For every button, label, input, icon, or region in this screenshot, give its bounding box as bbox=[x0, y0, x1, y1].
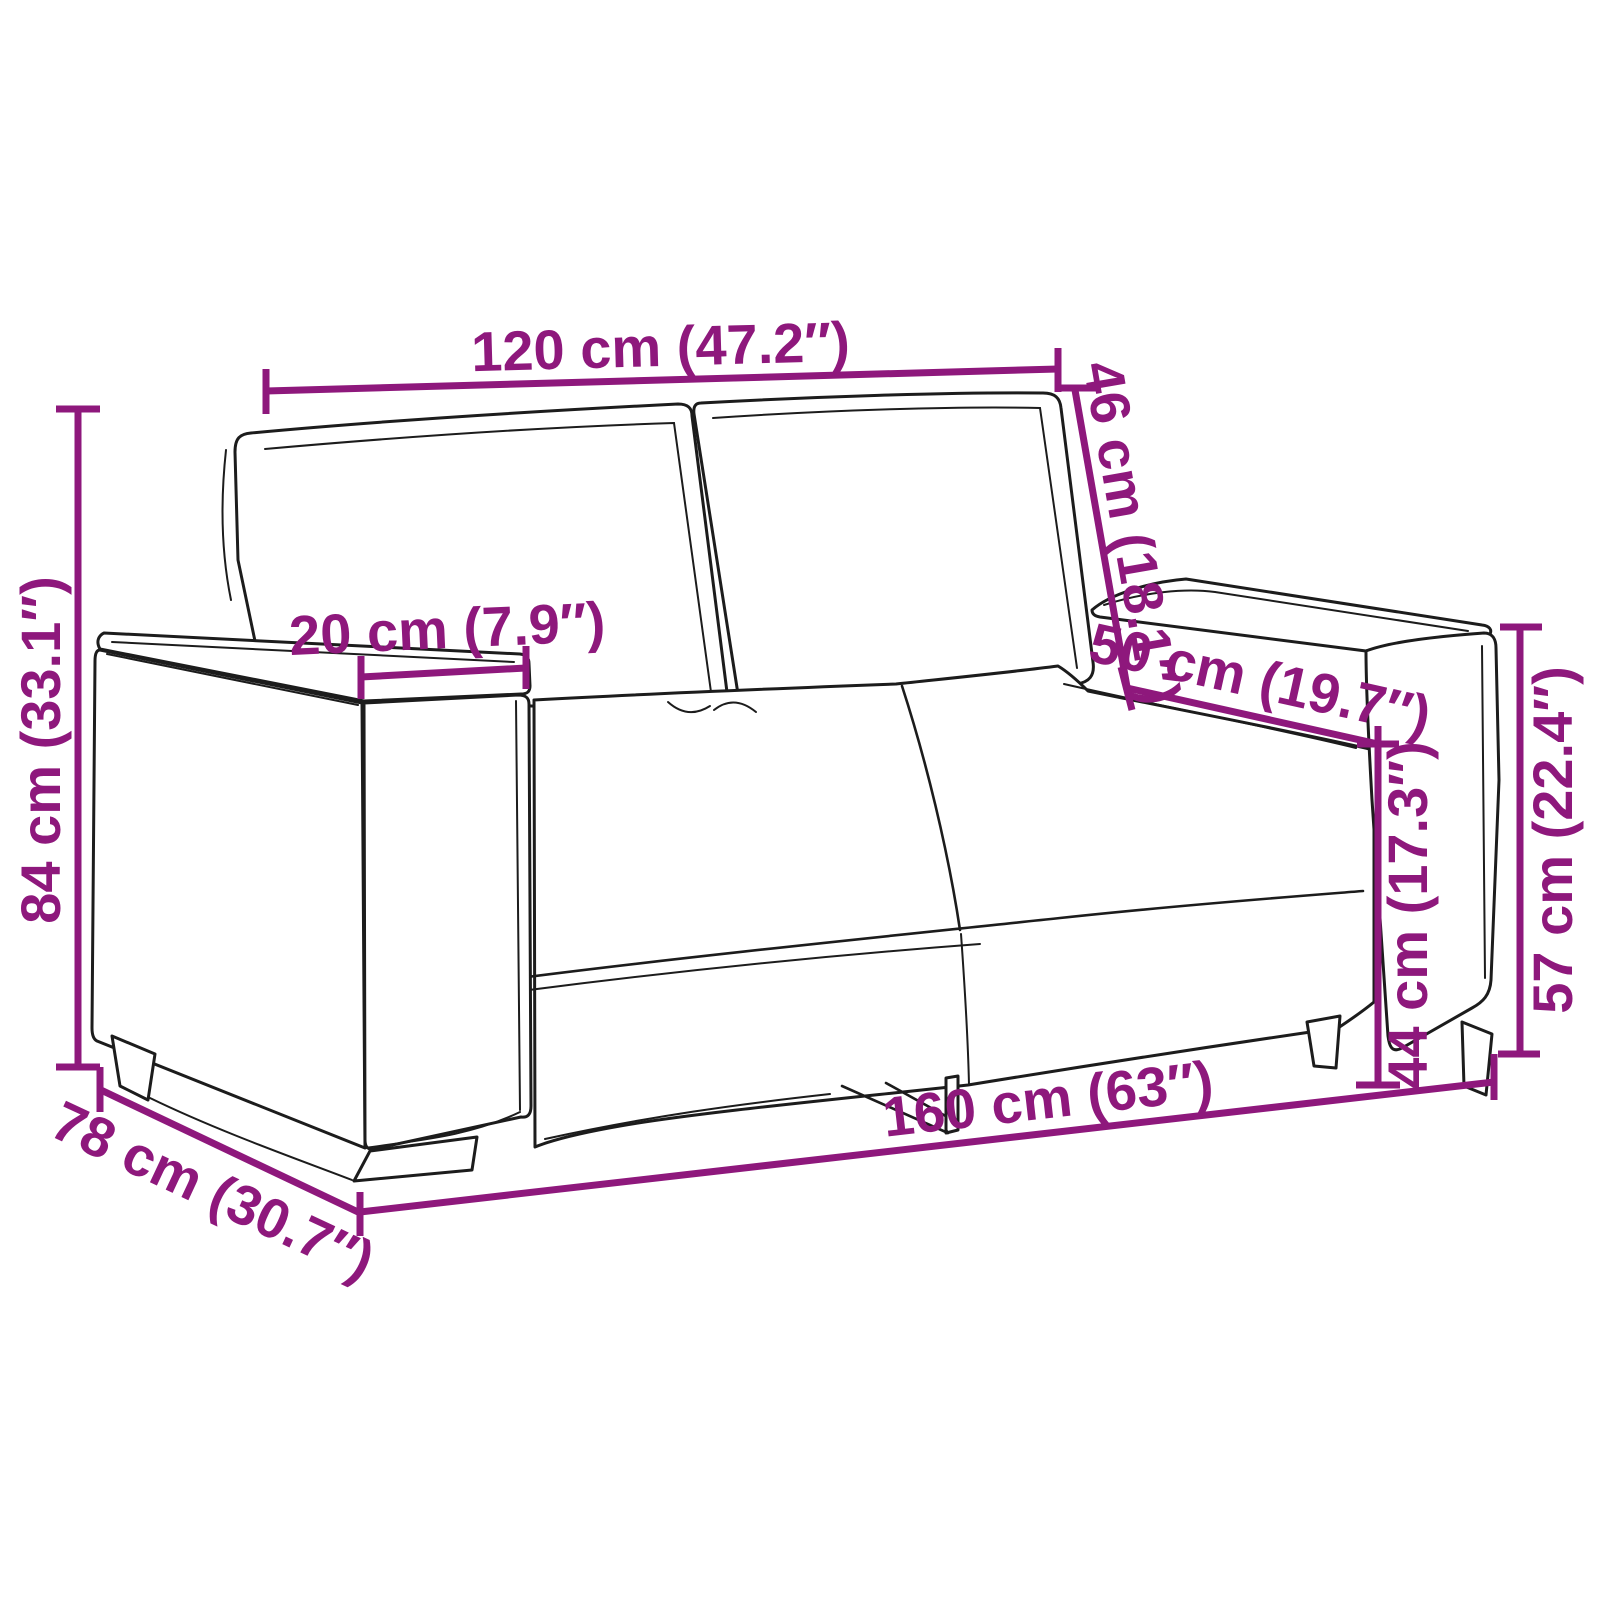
backrest-edge-left bbox=[223, 450, 231, 600]
seat-base bbox=[534, 666, 1374, 1147]
diagram-canvas: 120 cm (47.2″) 46 cm (18.1″) 50 cm (19.7… bbox=[0, 0, 1600, 1600]
sofa-leg-right-inner bbox=[1307, 1016, 1340, 1068]
sofa-dimension-diagram: 120 cm (47.2″) 46 cm (18.1″) 50 cm (19.7… bbox=[0, 0, 1600, 1600]
dimension-label-back-width: 120 cm (47.2″) bbox=[470, 310, 850, 384]
left-armrest bbox=[92, 633, 531, 1181]
left-armrest-inner bbox=[364, 695, 531, 1149]
back-cushion-right bbox=[694, 393, 1094, 708]
dim-armrest-height: 57 cm (22.4″) bbox=[1498, 627, 1584, 1054]
dimension-label-seat-height: 44 cm (17.3″) bbox=[1376, 741, 1439, 1088]
dimension-label-armrest-height: 57 cm (22.4″) bbox=[1521, 666, 1584, 1013]
dimension-label-total-height: 84 cm (33.1″) bbox=[9, 576, 72, 923]
sofa-drawing bbox=[92, 393, 1499, 1181]
dim-total-height: 84 cm (33.1″) bbox=[9, 409, 100, 1067]
